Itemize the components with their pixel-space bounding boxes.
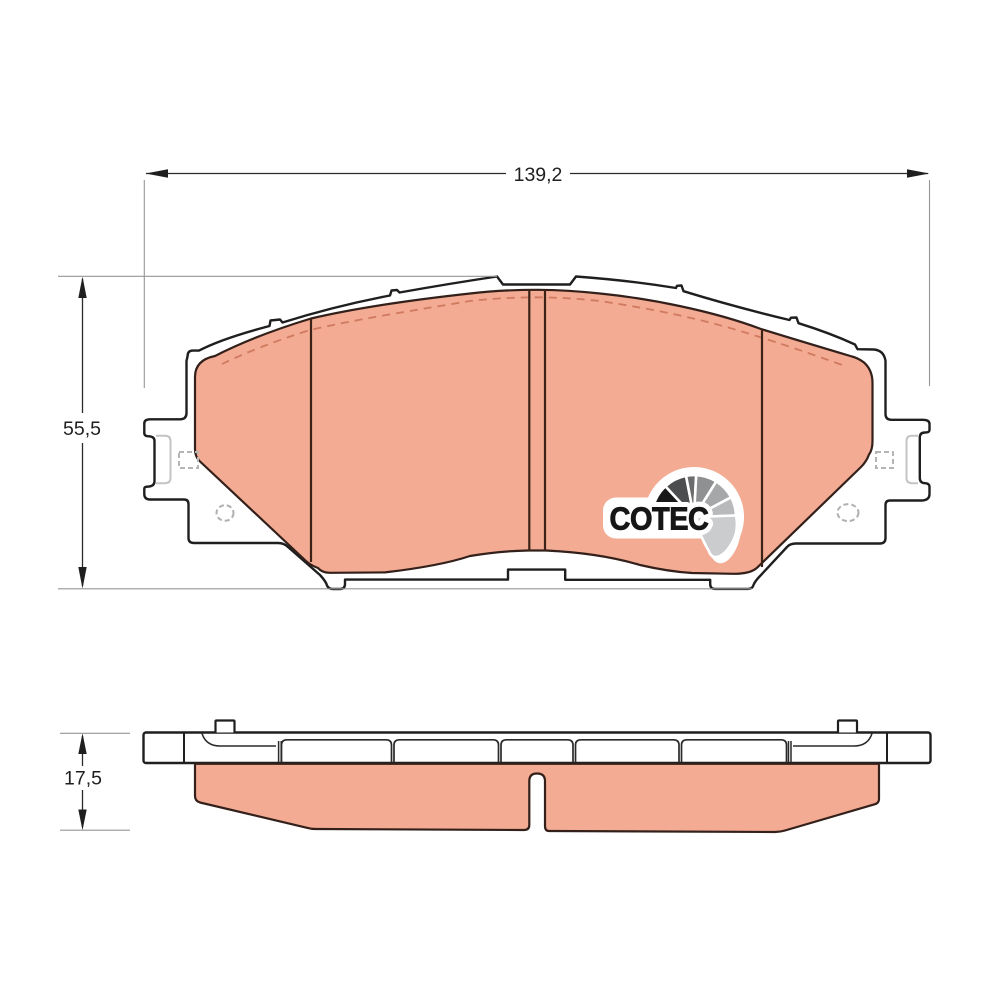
svg-text:55,5: 55,5 — [63, 418, 101, 440]
svg-text:17,5: 17,5 — [64, 768, 102, 790]
svg-text:139,2: 139,2 — [514, 164, 563, 186]
svg-text:COTEC: COTEC — [610, 501, 709, 537]
